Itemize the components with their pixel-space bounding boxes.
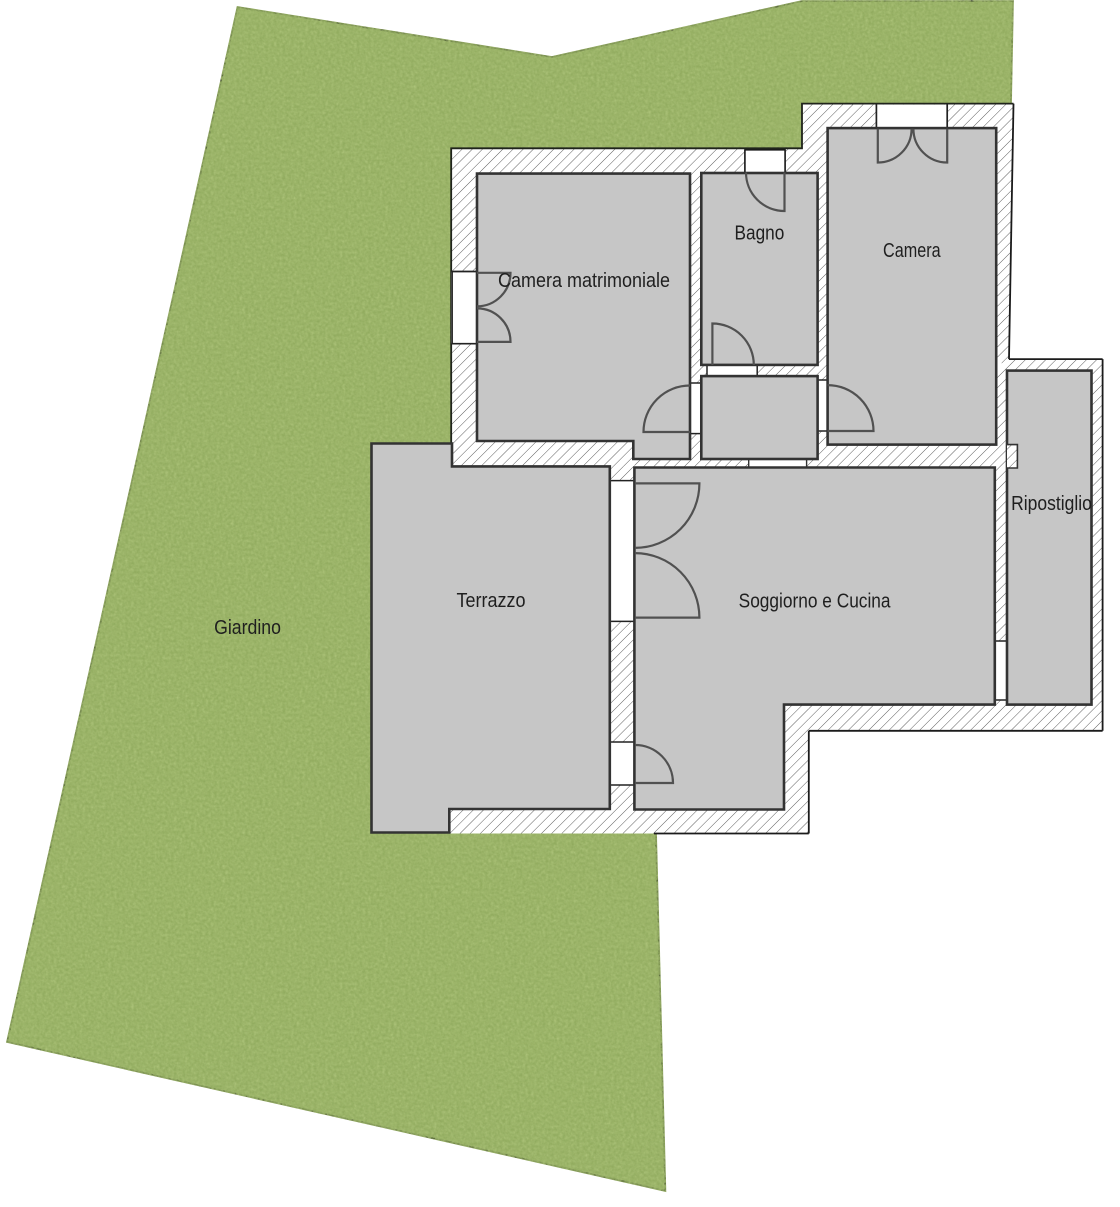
svg-text:Camera: Camera bbox=[883, 240, 941, 262]
svg-text:Ripostiglio: Ripostiglio bbox=[1011, 492, 1092, 514]
svg-text:Terrazzo: Terrazzo bbox=[457, 590, 526, 612]
svg-text:Bagno: Bagno bbox=[735, 221, 785, 244]
svg-text:Soggiorno e Cucina: Soggiorno e Cucina bbox=[739, 589, 891, 611]
svg-text:Camera matrimoniale: Camera matrimoniale bbox=[498, 270, 670, 292]
svg-text:Giardino: Giardino bbox=[214, 617, 281, 639]
